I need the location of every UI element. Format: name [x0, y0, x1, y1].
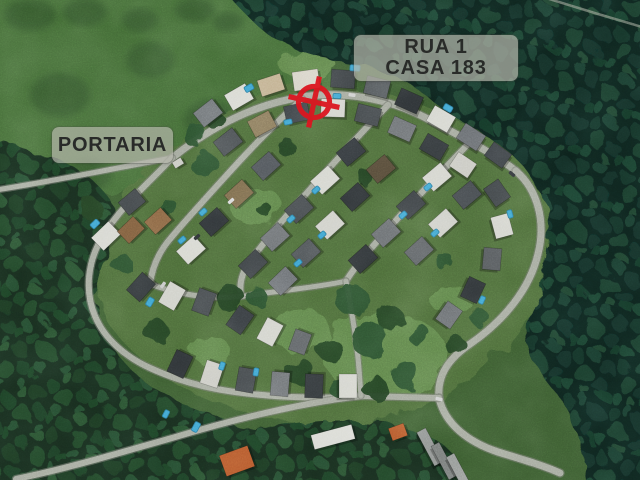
target-address-label: RUA 1 CASA 183 — [354, 35, 518, 81]
portaria-label: PORTARIA — [52, 127, 173, 163]
address-house-text: CASA 183 — [385, 58, 486, 79]
noise-texture-coarse — [0, 0, 640, 480]
satellite-canvas — [0, 0, 640, 480]
satellite-map-view: PORTARIA RUA 1 CASA 183 — [0, 0, 640, 480]
portaria-label-text: PORTARIA — [58, 135, 167, 156]
address-street-text: RUA 1 — [404, 37, 467, 58]
